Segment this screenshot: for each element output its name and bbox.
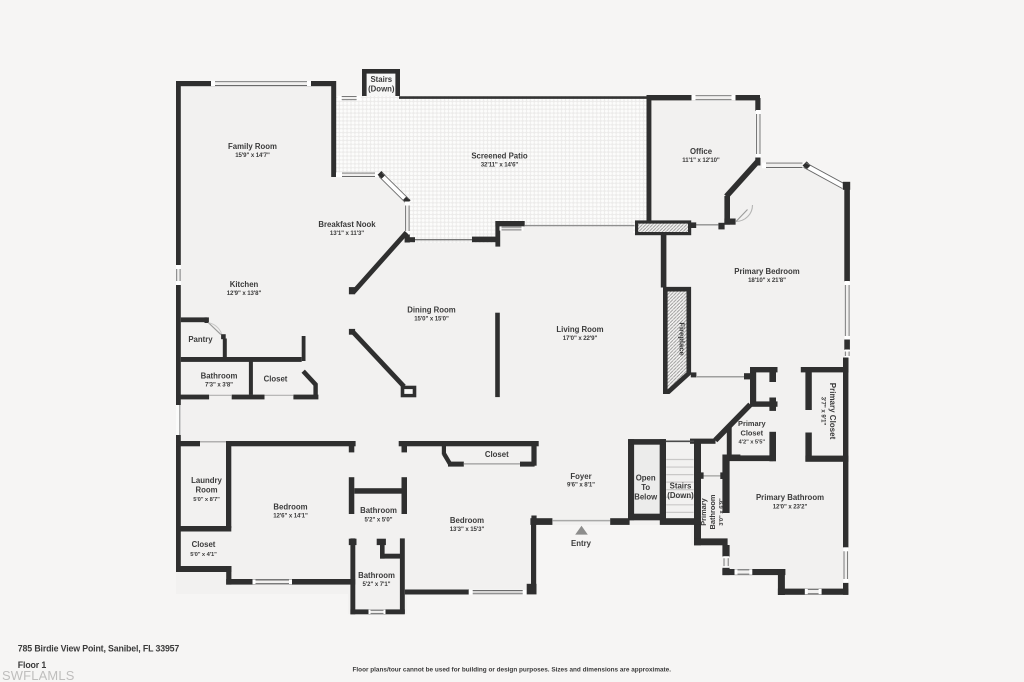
svg-text:3'7" x 9'1": 3'7" x 9'1" [819,397,825,426]
svg-text:Dining Room: Dining Room [407,305,456,314]
svg-text:Room: Room [195,486,217,495]
svg-text:15'0" x 15'0": 15'0" x 15'0" [414,315,449,322]
svg-text:32'11" x 14'6": 32'11" x 14'6" [481,162,519,169]
svg-text:12'6" x 14'1": 12'6" x 14'1" [273,513,308,520]
svg-text:Primary Bedroom: Primary Bedroom [734,267,799,276]
svg-text:7'3" x 3'8": 7'3" x 3'8" [205,382,233,389]
svg-text:Closet: Closet [485,450,509,459]
svg-text:Closet: Closet [192,540,216,549]
svg-text:15'9" x 14'7": 15'9" x 14'7" [235,152,270,159]
svg-text:Screened Patio: Screened Patio [471,152,528,161]
svg-text:Bathroom: Bathroom [708,494,717,529]
svg-text:Primary: Primary [699,497,708,525]
svg-text:Entry: Entry [571,539,592,548]
svg-text:Office: Office [690,147,713,156]
svg-text:(Down): (Down) [368,84,395,93]
svg-text:Laundry: Laundry [191,476,222,485]
svg-text:Bathroom: Bathroom [360,506,397,515]
svg-text:12'9" x 13'8": 12'9" x 13'8" [227,290,262,297]
svg-text:Stairs: Stairs [370,75,392,84]
svg-text:Foyer: Foyer [570,472,591,481]
svg-text:Stairs: Stairs [670,481,692,490]
svg-text:Kitchen: Kitchen [230,280,259,289]
svg-text:Closet: Closet [264,375,288,384]
svg-text:9'6" x 8'1": 9'6" x 8'1" [567,482,595,489]
svg-text:To: To [641,483,650,492]
svg-text:5'0" x 4'1": 5'0" x 4'1" [190,552,217,558]
svg-text:Bathroom: Bathroom [201,372,238,381]
svg-text:Open: Open [636,474,656,483]
svg-text:Living Room: Living Room [556,325,603,334]
svg-text:Bedroom: Bedroom [450,516,484,525]
svg-text:18'10" x 21'8": 18'10" x 21'8" [748,277,786,284]
svg-text:Floor plans/tour cannot be use: Floor plans/tour cannot be used for buil… [353,666,672,673]
svg-text:Below: Below [634,493,658,502]
svg-text:5'2" x 7'1": 5'2" x 7'1" [363,581,391,588]
svg-text:Pantry: Pantry [188,335,213,344]
svg-text:(Down): (Down) [667,491,694,500]
svg-text:5'0" x 8'7": 5'0" x 8'7" [193,497,220,503]
svg-text:17'0" x 22'9": 17'0" x 22'9" [563,335,598,342]
svg-text:13'3" x 15'3": 13'3" x 15'3" [450,526,485,533]
svg-text:Primary: Primary [738,419,766,428]
svg-text:5'2" x 5'0": 5'2" x 5'0" [365,517,393,524]
svg-text:Breakfast Nook: Breakfast Nook [318,220,376,229]
svg-text:11'1" x 12'10": 11'1" x 12'10" [682,157,720,164]
svg-text:Bedroom: Bedroom [273,503,307,512]
svg-text:Fireplace: Fireplace [678,322,687,355]
svg-text:3'0" x 6'9": 3'0" x 6'9" [719,498,725,526]
svg-text:Primary Closet: Primary Closet [828,383,837,440]
svg-text:785 Birdie View Point, Sanibel: 785 Birdie View Point, Sanibel, FL 33957 [18,643,180,653]
svg-text:Closet: Closet [741,428,764,437]
svg-text:4'2" x 5'5": 4'2" x 5'5" [739,440,766,446]
svg-text:SWFLAMLS: SWFLAMLS [2,668,75,682]
svg-text:Family Room: Family Room [228,142,277,151]
svg-text:Bathroom: Bathroom [358,571,395,580]
svg-text:13'1" x 11'3": 13'1" x 11'3" [330,230,364,237]
svg-text:12'0" x 23'2": 12'0" x 23'2" [773,504,808,511]
svg-text:Primary Bathroom: Primary Bathroom [756,493,824,502]
